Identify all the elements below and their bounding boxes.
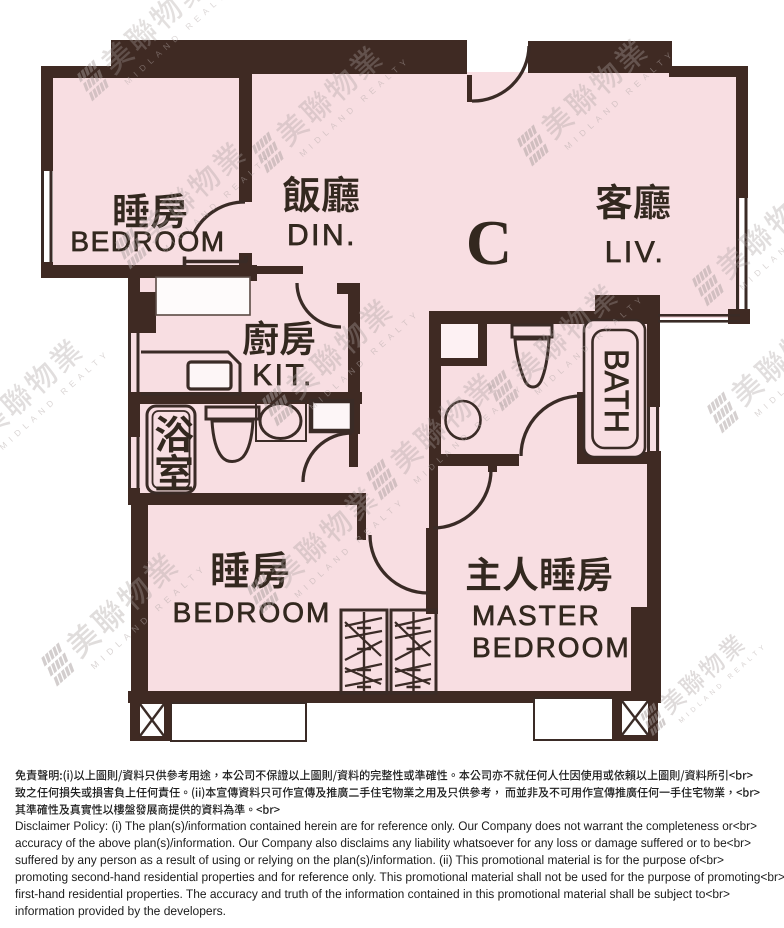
svg-text:suffered by any person as a re: suffered by any person as a result of us…	[15, 853, 724, 867]
svg-text:BATH: BATH	[597, 349, 635, 433]
svg-text:LIV.: LIV.	[605, 236, 666, 269]
svg-text:promoting second-hand resident: promoting second-hand residential proper…	[15, 870, 784, 884]
svg-text:DIN.: DIN.	[287, 219, 357, 252]
svg-text:BEDROOM: BEDROOM	[173, 597, 332, 628]
svg-text:MASTER: MASTER	[472, 600, 601, 631]
svg-text:information provided by the de: information provided by the developers.	[15, 904, 226, 918]
svg-text:first-hand residential propert: first-hand residential properties. The a…	[15, 887, 730, 901]
svg-text:accuracy of the above plan(s)/: accuracy of the above plan(s)/informatio…	[15, 836, 751, 850]
svg-text:BEDROOM: BEDROOM	[472, 632, 631, 663]
svg-text:C: C	[466, 207, 512, 278]
svg-text:Disclaimer Policy: (i) The pla: Disclaimer Policy: (i) The plan(s)/infor…	[15, 819, 757, 833]
